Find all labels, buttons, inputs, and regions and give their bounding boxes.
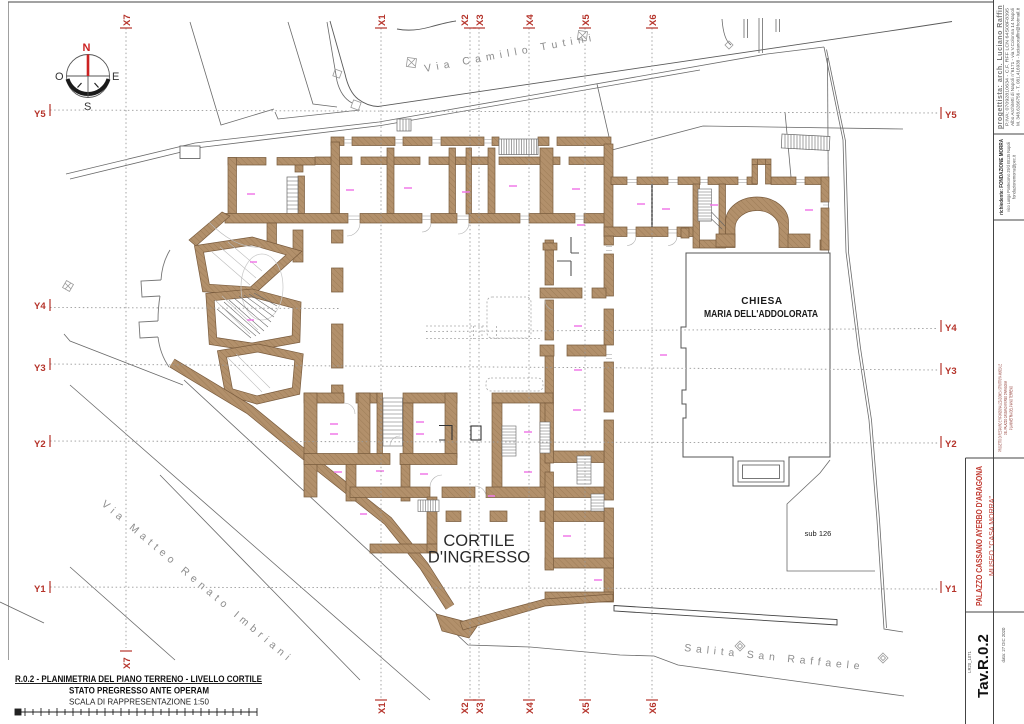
svg-text:PLANIMETRIA DEL PIANO TERRENO: PLANIMETRIA DEL PIANO TERRENO [1009,386,1014,430]
svg-text:Y4: Y4 [34,301,46,312]
svg-text:Y2: Y2 [945,439,957,450]
svg-text:E: E [112,71,119,83]
svg-text:MUSEO "CASA MORRA": MUSEO "CASA MORRA" [987,496,996,576]
svg-text:PALAZZO CASSANO AYERBO D'ARAGO: PALAZZO CASSANO AYERBO D'ARAGONA [975,466,984,606]
svg-text:X4: X4 [525,702,536,714]
svg-text:X2: X2 [460,14,471,26]
svg-text:X3: X3 [475,14,486,26]
svg-text:X6: X6 [648,702,659,714]
svg-text:richiedente: FONDAZIONE MORRA: richiedente: FONDAZIONE MORRA [999,138,1005,215]
svg-text:Y5: Y5 [945,110,957,121]
svg-text:X4: X4 [525,14,536,26]
svg-text:Y2: Y2 [34,439,46,450]
svg-text:Y3: Y3 [34,363,46,374]
svg-text:O: O [55,71,64,83]
svg-text:X6: X6 [648,14,659,26]
svg-text:PROGETTO DI RESTAURO E RIFUNZI: PROGETTO DI RESTAURO E RIFUNZIONALIZZAZI… [998,364,1003,452]
svg-text:vico Lungo Pontecorvo 29/d 801: vico Lungo Pontecorvo 29/d 80135 Napoli [1006,142,1011,212]
svg-text:X3: X3 [475,702,486,714]
svg-text:sub 126: sub 126 [805,529,832,538]
svg-text:X5: X5 [581,14,592,26]
svg-text:M. 348.6266756 - T. 081.416938: M. 348.6266756 - T. 081.416938 - luciano… [1016,7,1021,126]
svg-text:Y1: Y1 [34,584,46,595]
svg-text:Y3: Y3 [945,366,957,377]
svg-text:Albo Architetti di Napoli n°61: Albo Architetti di Napoli n°6171 - via V… [1010,8,1015,126]
svg-text:LR20_1071: LR20_1071 [967,651,972,673]
svg-text:X7: X7 [122,657,133,669]
svg-text:P.IVA: 07092810634 - C.F. RFF: P.IVA: 07092810634 - C.F. RFF LCN 64S08F… [1005,7,1010,126]
svg-text:Tav.R.0.2: Tav.R.0.2 [975,634,992,698]
svg-text:SCALA DI RAPPRESENTAZIONE 1:50: SCALA DI RAPPRESENTAZIONE 1:50 [69,697,209,707]
svg-text:DEL PALAZZO CASSANO AYERBO D'A: DEL PALAZZO CASSANO AYERBO D'ARAGONA [1003,381,1008,435]
svg-text:X1: X1 [377,14,388,26]
svg-text:progettista: arch. Luciano Ra: progettista: arch. Luciano Raffin [997,5,1004,129]
svg-text:Y4: Y4 [945,323,957,334]
svg-text:Y5: Y5 [34,109,46,120]
svg-text:X7: X7 [122,14,133,26]
svg-text:CORTILE: CORTILE [443,532,514,550]
svg-text:Y1: Y1 [945,584,957,595]
svg-text:D'INGRESSO: D'INGRESSO [428,549,530,567]
svg-text:N: N [83,42,91,54]
svg-text:CHIESA: CHIESA [741,296,782,307]
svg-text:X2: X2 [460,702,471,714]
svg-text:X5: X5 [581,702,592,714]
svg-text:MARIA DELL'ADDOLORATA: MARIA DELL'ADDOLORATA [704,309,818,320]
svg-text:R.0.2 - PLANIMETRIA DEL PIANO: R.0.2 - PLANIMETRIA DEL PIANO TERRENO - … [15,674,262,684]
svg-text:S: S [84,101,91,113]
svg-text:fondazionemorra@pec.it: fondazionemorra@pec.it [1012,154,1017,199]
svg-text:X1: X1 [377,702,388,714]
svg-text:data: 27 DIC 2020: data: 27 DIC 2020 [1001,627,1006,662]
svg-text:STATO PREGRESSO ANTE OPERAM: STATO PREGRESSO ANTE OPERAM [69,686,209,696]
